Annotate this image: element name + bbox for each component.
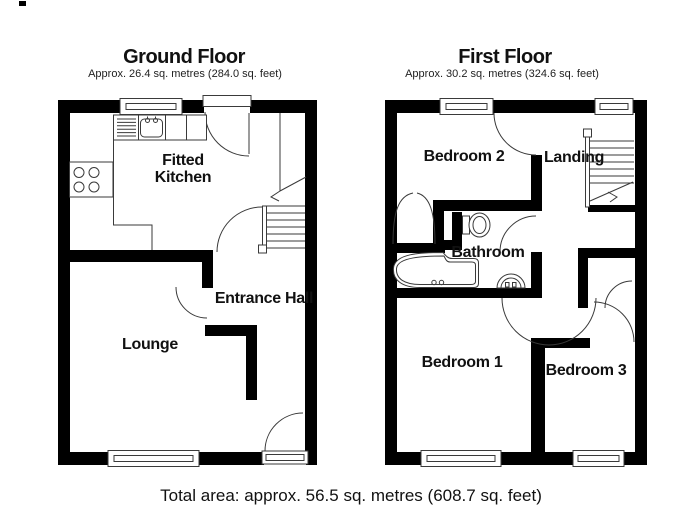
- room-label-lounge: Lounge: [122, 336, 178, 353]
- first-stairs-icon: [584, 129, 635, 207]
- lounge-window: [108, 451, 199, 467]
- basin-icon: [497, 274, 525, 288]
- bedroom1-window: [421, 451, 501, 467]
- bedroom3-window: [573, 451, 624, 467]
- room-label-bathroom: Bathroom: [451, 244, 524, 261]
- room-label-bedroom2: Bedroom 2: [424, 148, 505, 165]
- first-floor-area: Approx. 30.2 sq. metres (324.6 sq. feet): [405, 68, 599, 81]
- first-floor-title: First Floor: [458, 46, 551, 68]
- first-interior-walls: [391, 155, 635, 453]
- room-label-entrance-hall: Entrance Hall: [209, 290, 319, 307]
- kitchen-back-door: [203, 96, 251, 157]
- kitchen-window: [120, 99, 182, 115]
- ground-floor-title: Ground Floor: [123, 46, 245, 68]
- front-door: [262, 413, 308, 465]
- total-area-text: Total area: approx. 56.5 sq. metres (608…: [160, 487, 542, 505]
- room-label-landing: Landing: [544, 149, 604, 166]
- room-label-bedroom1: Bedroom 1: [422, 354, 503, 371]
- floorplan-page: Ground Floor Approx. 26.4 sq. metres (28…: [0, 0, 700, 509]
- kitchen-sink-icon: [114, 115, 207, 140]
- ground-stairs-icon: [259, 113, 307, 253]
- ground-floor-area: Approx. 26.4 sq. metres (284.0 sq. feet): [88, 68, 282, 81]
- ground-interior-walls: [64, 250, 257, 400]
- wardrobe-doors-icon: [393, 193, 435, 244]
- toilet-icon: [463, 213, 491, 237]
- bedroom3-nook-door-arc: [605, 281, 632, 308]
- landing-window: [595, 99, 633, 115]
- room-label-kitchen: Fitted Kitchen: [138, 152, 228, 186]
- bedroom3-door-arc: [594, 302, 634, 342]
- artifact-mark: [19, 1, 26, 6]
- room-label-bedroom3: Bedroom 3: [546, 362, 627, 379]
- bedroom2-window: [440, 99, 493, 115]
- kitchen-door-arc: [217, 207, 262, 252]
- kitchen-hob-icon: [70, 162, 114, 197]
- lounge-door-arc: [176, 287, 207, 318]
